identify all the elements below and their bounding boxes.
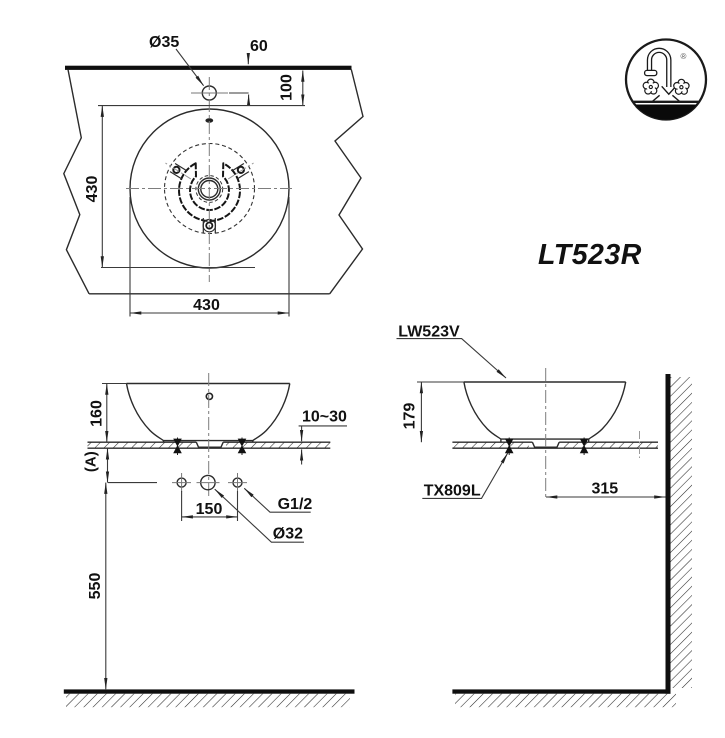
svg-text:10~30: 10~30 <box>302 409 347 426</box>
svg-text:430: 430 <box>193 297 220 314</box>
svg-text:315: 315 <box>591 481 618 498</box>
svg-text:®: ® <box>681 52 687 61</box>
svg-text:550: 550 <box>87 573 104 600</box>
svg-text:179: 179 <box>402 403 419 430</box>
svg-text:430: 430 <box>84 176 101 203</box>
svg-text:160: 160 <box>89 400 106 427</box>
svg-text:100: 100 <box>279 74 296 101</box>
svg-text:Ø32: Ø32 <box>273 526 303 543</box>
svg-text:Ø35: Ø35 <box>149 34 179 51</box>
svg-text:LT523R: LT523R <box>538 239 642 271</box>
svg-text:150: 150 <box>196 501 223 518</box>
svg-text:TX809L: TX809L <box>424 483 481 500</box>
svg-text:(A): (A) <box>83 451 100 472</box>
svg-text:60: 60 <box>250 38 268 55</box>
svg-text:G1/2: G1/2 <box>278 496 313 513</box>
